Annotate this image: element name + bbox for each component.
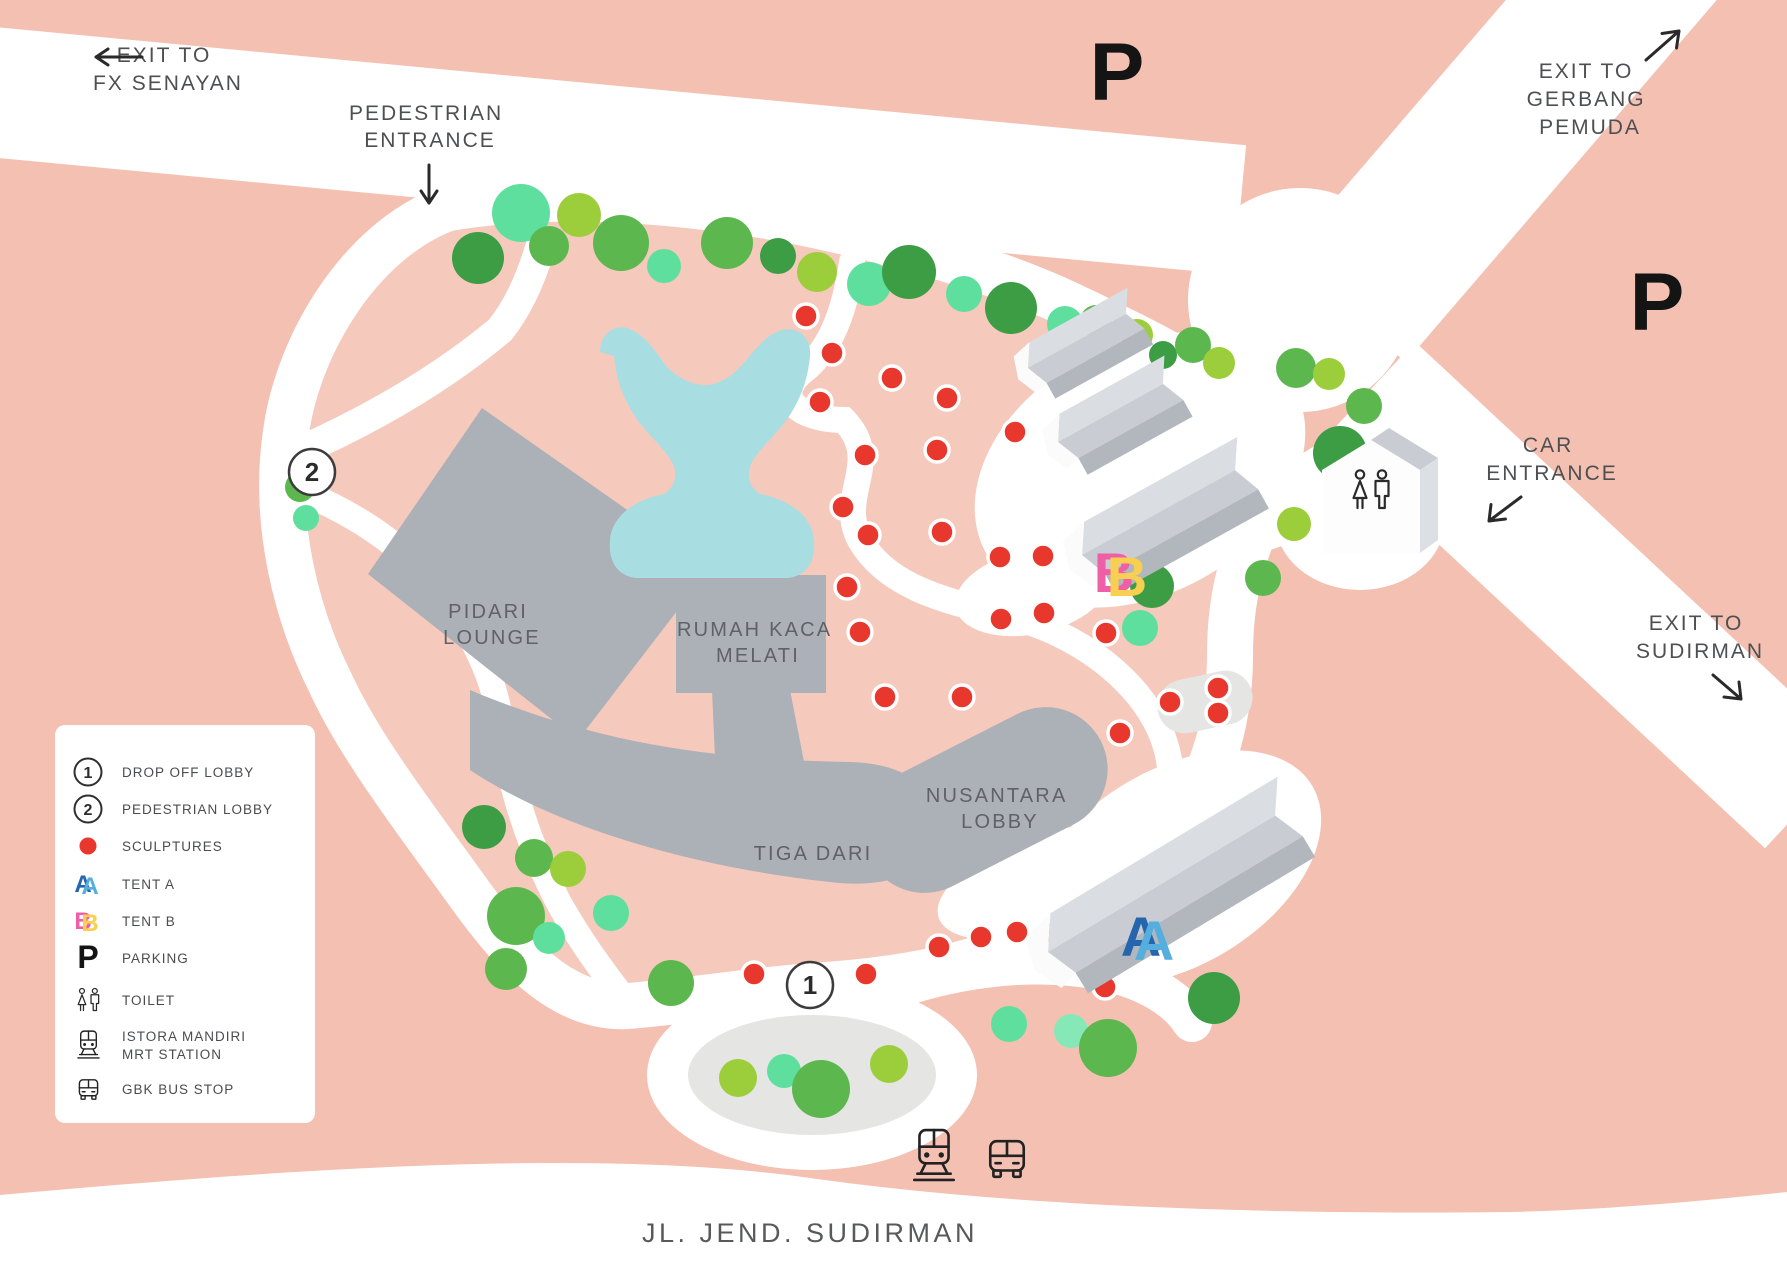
- sculpture-dot: [880, 366, 904, 390]
- legend-2-number: 2: [84, 802, 93, 819]
- tree: [870, 1045, 908, 1083]
- marker-drop-off-lobby: 1: [787, 962, 833, 1008]
- legend: 1 DROP OFF LOBBY 2 PEDESTRIAN LOBBY SCUL…: [55, 725, 315, 1123]
- tree: [1122, 610, 1158, 646]
- sculpture-dot: [854, 962, 878, 986]
- sculpture-dot: [1158, 690, 1182, 714]
- sculpture-dot: [1108, 721, 1132, 745]
- tree: [647, 249, 681, 283]
- sculpture-dot: [927, 935, 951, 959]
- tree: [1203, 347, 1235, 379]
- legend-label: SCULPTURES: [122, 839, 223, 854]
- tree: [293, 505, 319, 531]
- tree: [462, 805, 506, 849]
- tree: [533, 922, 565, 954]
- sculpture-dot: [1206, 701, 1230, 725]
- venue-map: B B A A 2 1 EXIT TO FX SENAYAN PEDESTRIA…: [0, 0, 1787, 1265]
- sculpture-dot: [856, 523, 880, 547]
- marker-2-number: 2: [305, 457, 319, 487]
- legend-label: GBK BUS STOP: [122, 1082, 234, 1097]
- tent-b-letter: B: [1107, 545, 1147, 608]
- tree: [485, 948, 527, 990]
- sculpture-dot: [950, 685, 974, 709]
- legend-label: TENT B: [122, 914, 176, 929]
- parking-p-right: P: [1630, 257, 1685, 348]
- tree: [648, 960, 694, 1006]
- tree: [985, 282, 1037, 334]
- tree: [797, 252, 837, 292]
- sculpture-dot: [1032, 601, 1056, 625]
- label-exit-gerbang-pemuda: EXIT TO GERBANG PEMUDA: [1527, 60, 1654, 139]
- legend-label: DROP OFF LOBBY: [122, 765, 254, 780]
- tree: [882, 245, 936, 299]
- tree: [529, 226, 569, 266]
- sculpture-dot: [853, 443, 877, 467]
- tree: [991, 1006, 1027, 1042]
- sculpture-dot: [969, 925, 993, 949]
- legend-label: PARKING: [122, 951, 189, 966]
- tree: [515, 839, 553, 877]
- sculpture-dot: [1003, 420, 1027, 444]
- tree: [1346, 388, 1382, 424]
- legend-label: ISTORA MANDIRI: [122, 1029, 246, 1044]
- sculpture-dot: [808, 390, 832, 414]
- sculpture-dot: [873, 685, 897, 709]
- tree: [1277, 507, 1311, 541]
- legend-label: TENT A: [122, 877, 175, 892]
- tree: [760, 238, 796, 274]
- tree: [701, 217, 753, 269]
- tree: [1276, 348, 1316, 388]
- tree: [593, 895, 629, 931]
- tree: [1188, 972, 1240, 1024]
- tent-a-marker: A A: [1121, 905, 1174, 972]
- tree: [593, 215, 649, 271]
- building-stem: [712, 690, 806, 780]
- legend-label: TOILET: [122, 993, 175, 1008]
- tree: [946, 276, 982, 312]
- tree: [719, 1059, 757, 1097]
- sculpture-dot: [988, 545, 1012, 569]
- sculpture-dot: [835, 575, 859, 599]
- tent-a-icon: A: [81, 873, 98, 900]
- parking-icon: P: [77, 939, 98, 975]
- sculpture-dot: [935, 386, 959, 410]
- sculpture-dot: [794, 304, 818, 328]
- sculpture-dot: [989, 607, 1013, 631]
- sculpture-dot-icon: [80, 838, 97, 855]
- sculpture-dot: [1094, 621, 1118, 645]
- marker-1-number: 1: [803, 970, 817, 1000]
- parking-p-top: P: [1090, 27, 1145, 118]
- sculpture-dot: [848, 620, 872, 644]
- street-label: JL. JEND. SUDIRMAN: [642, 1218, 978, 1248]
- sculpture-dot: [1005, 920, 1029, 944]
- sculpture-dot: [742, 962, 766, 986]
- tree: [1245, 560, 1281, 596]
- tree: [1313, 358, 1345, 390]
- legend-1-number: 1: [84, 765, 93, 782]
- label-tiga-dari: TIGA DARI: [754, 843, 873, 865]
- tent-b-icon: B: [81, 910, 98, 937]
- sculpture-dot: [930, 520, 954, 544]
- tree: [452, 232, 504, 284]
- tree: [557, 193, 601, 237]
- tree: [550, 851, 586, 887]
- tent-a-letter: A: [1134, 909, 1174, 972]
- tree: [792, 1060, 850, 1118]
- legend-label: PEDESTRIAN LOBBY: [122, 802, 273, 817]
- sculpture-dot: [1206, 676, 1230, 700]
- tent-b-marker: B B: [1094, 541, 1147, 608]
- sculpture-dot: [831, 495, 855, 519]
- sculpture-dot: [925, 438, 949, 462]
- sculpture-dot: [1031, 544, 1055, 568]
- sculpture-dot: [820, 341, 844, 365]
- legend-label: MRT STATION: [122, 1047, 222, 1062]
- tree: [1079, 1019, 1137, 1077]
- marker-pedestrian-lobby: 2: [289, 449, 335, 495]
